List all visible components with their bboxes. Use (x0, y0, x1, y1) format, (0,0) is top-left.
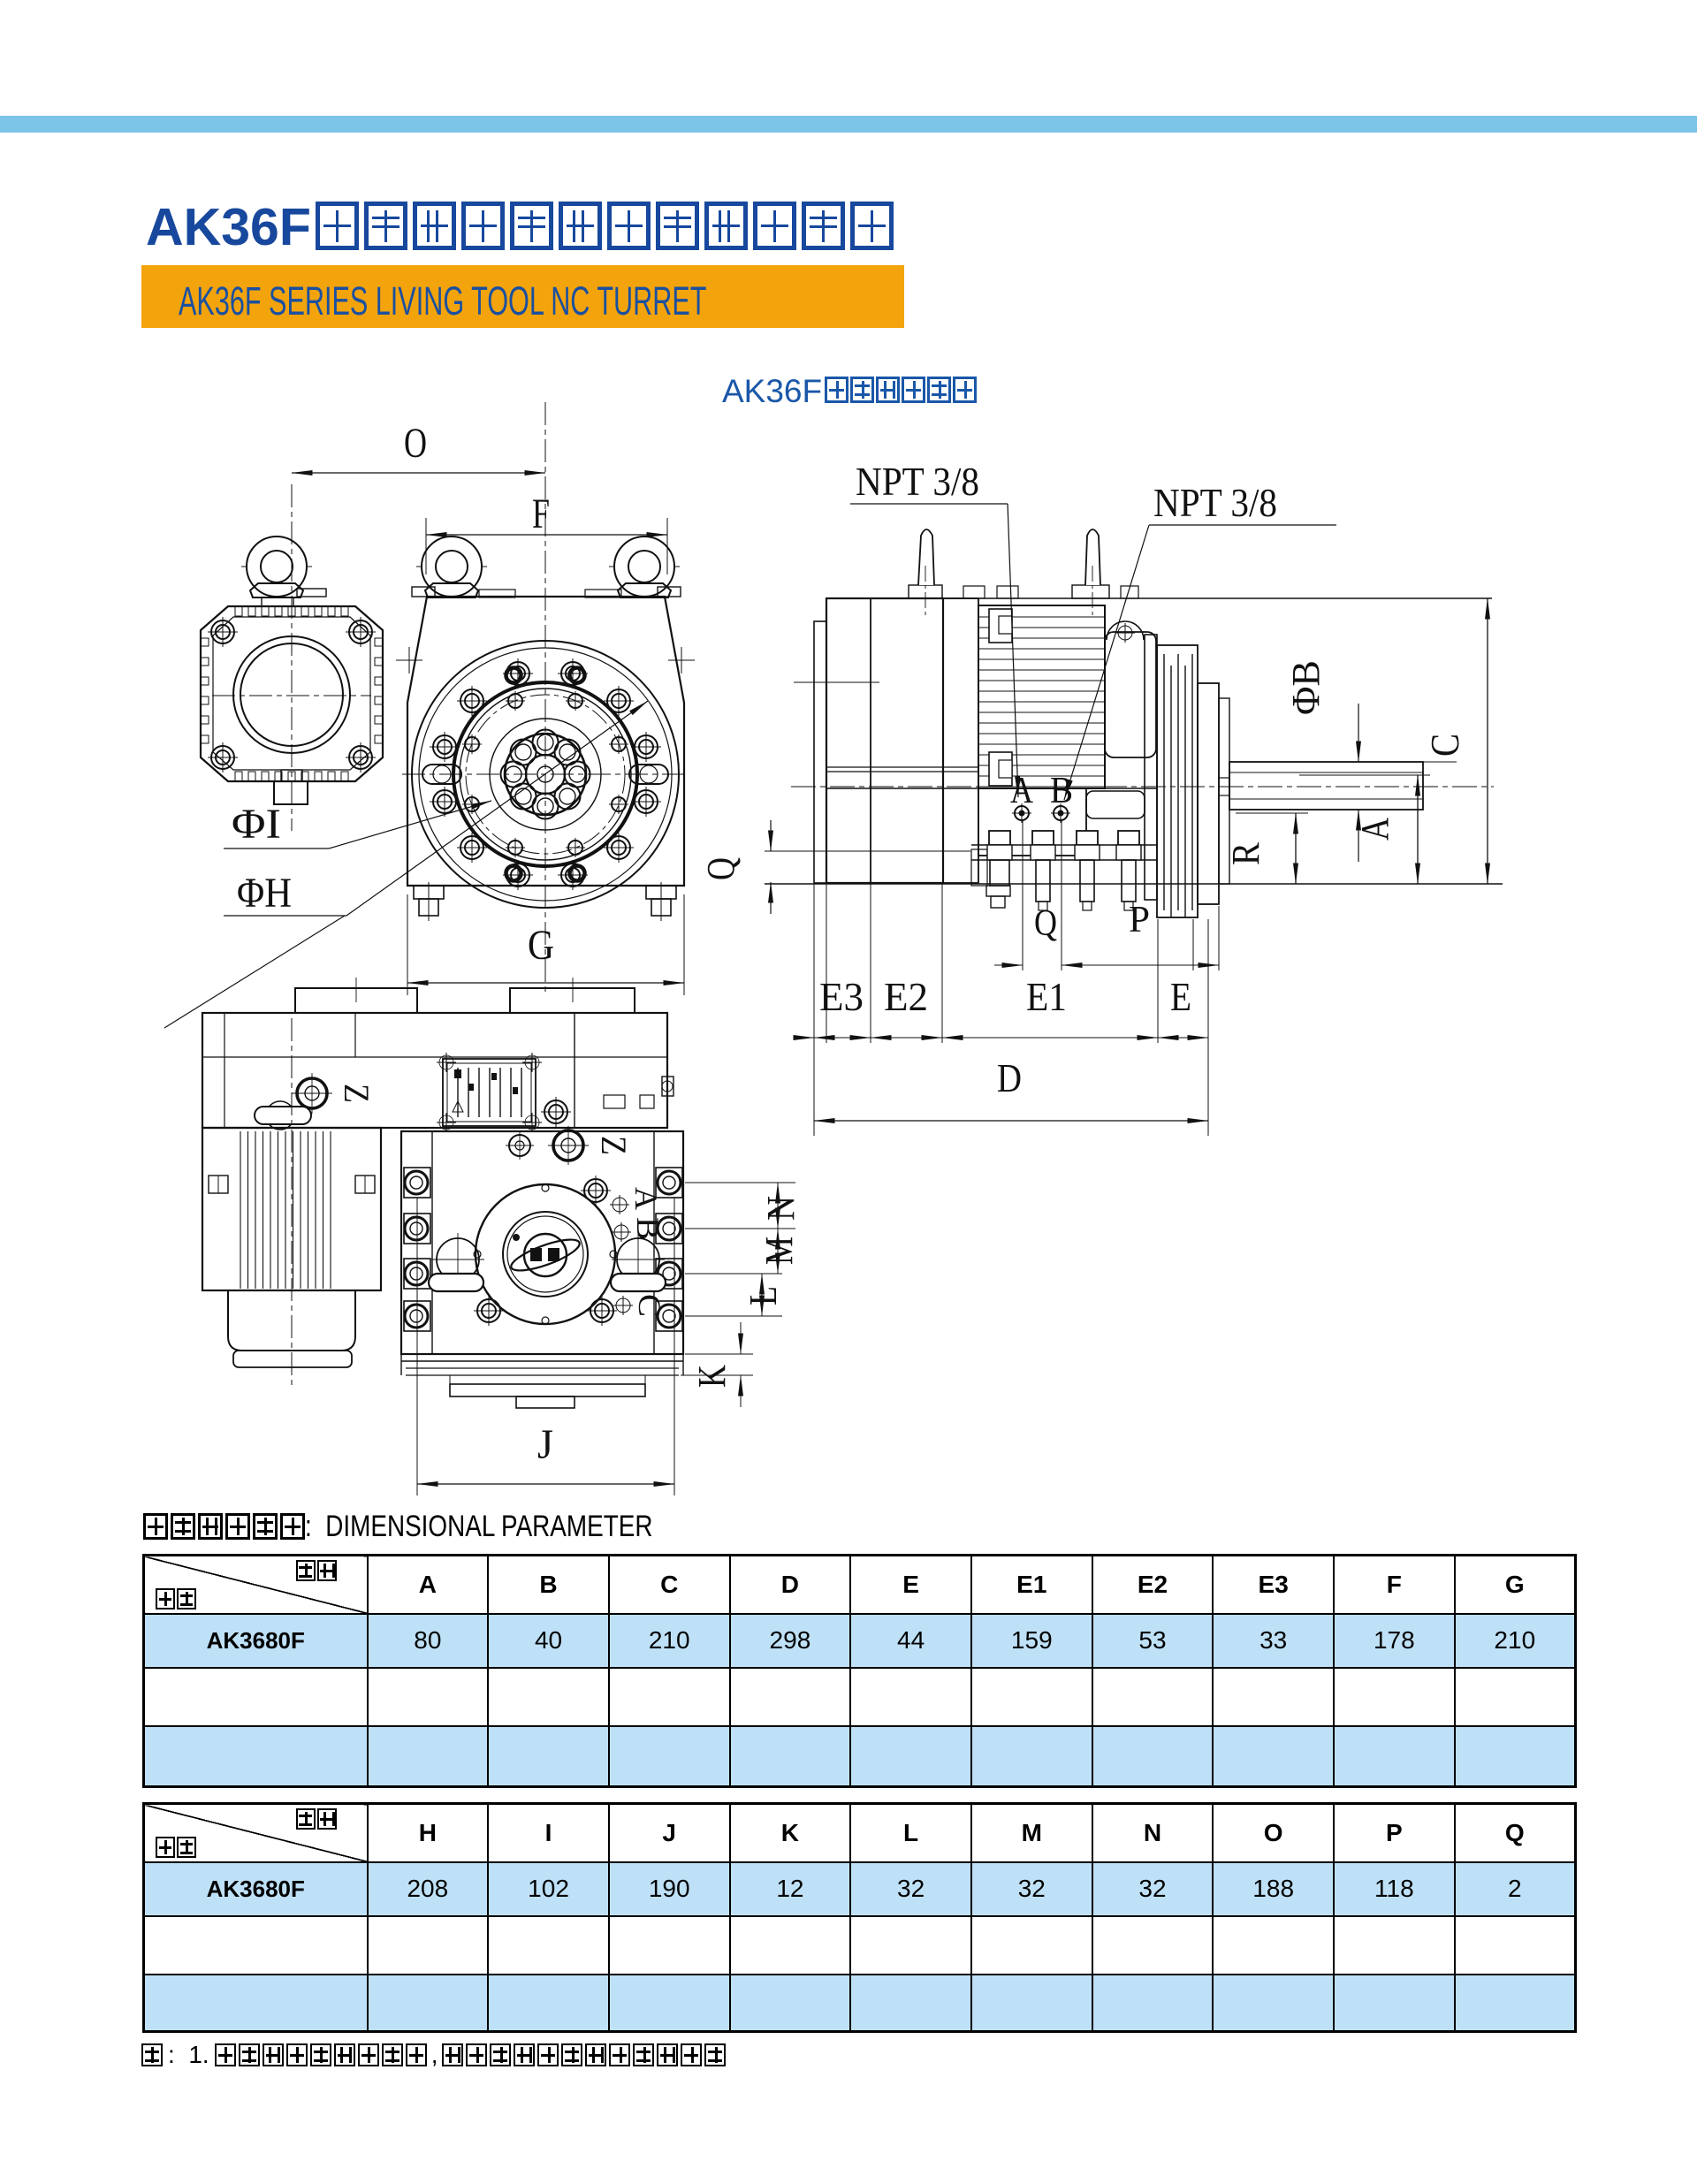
svg-text:K: K (690, 1365, 734, 1388)
svg-text:E1: E1 (1026, 974, 1067, 1019)
svg-text:O: O (404, 420, 427, 467)
svg-text:E2: E2 (884, 974, 928, 1019)
svg-text:ΦI: ΦI (232, 801, 281, 848)
svg-text:A: A (1353, 818, 1396, 841)
svg-text:F: F (532, 491, 550, 537)
svg-text:B: B (1050, 771, 1073, 811)
svg-text:G: G (528, 922, 554, 969)
svg-text:Z: Z (337, 1084, 377, 1103)
svg-text:B: B (630, 1217, 666, 1240)
svg-text:C: C (1422, 734, 1467, 757)
svg-text:P: P (1129, 900, 1150, 940)
svg-text:E: E (1170, 974, 1191, 1019)
svg-text:E3: E3 (819, 974, 864, 1019)
svg-text:A: A (628, 1187, 664, 1210)
svg-text:C: C (632, 1294, 667, 1317)
svg-text:R: R (1224, 841, 1267, 865)
svg-text:NPT 3/8: NPT 3/8 (856, 459, 979, 504)
svg-text:N: N (759, 1196, 803, 1221)
svg-text:A: A (1010, 771, 1034, 811)
svg-text:D: D (997, 1055, 1022, 1100)
svg-text:Q: Q (699, 857, 742, 880)
svg-text:M: M (757, 1237, 801, 1265)
svg-text:ΦB: ΦB (1284, 660, 1328, 715)
svg-text:Z: Z (594, 1136, 634, 1155)
svg-text:Q: Q (1034, 903, 1057, 944)
svg-text:ΦH: ΦH (237, 870, 292, 917)
svg-text:J: J (537, 1421, 553, 1468)
svg-text:L: L (742, 1286, 785, 1305)
svg-text:NPT 3/8: NPT 3/8 (1153, 480, 1277, 525)
